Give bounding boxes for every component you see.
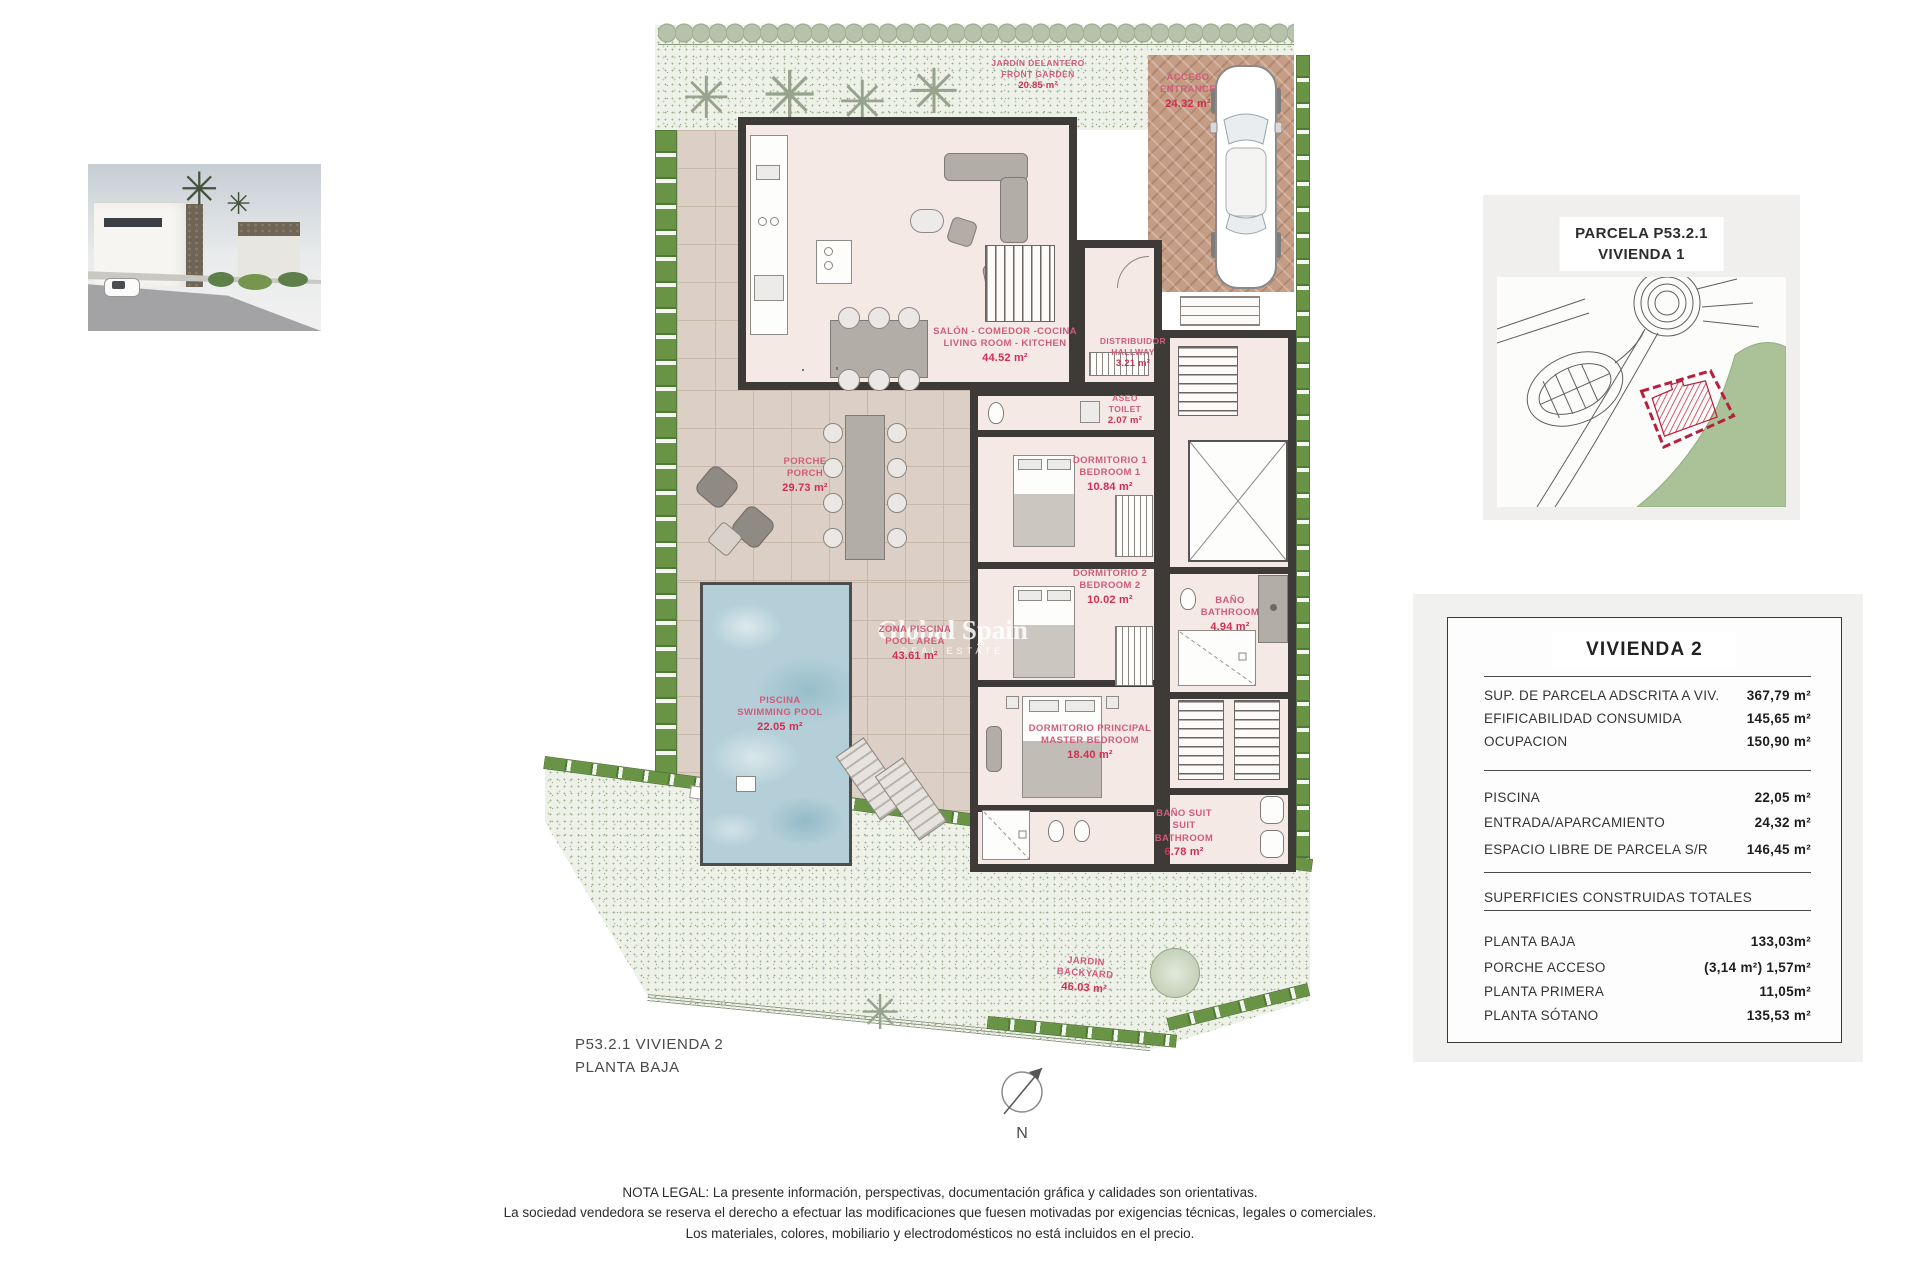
wardrobe: [1115, 495, 1153, 557]
room-area: 24.32 m²: [1152, 97, 1224, 111]
label-toilet: ASEO TOILET 2.07 m²: [1103, 393, 1147, 427]
interior-wall: [1170, 692, 1288, 699]
divider: [1484, 872, 1811, 873]
room-area: 43.61 m²: [878, 649, 952, 663]
location-title-line2: VIVIENDA 1: [1575, 244, 1708, 265]
divider: [1484, 770, 1811, 771]
spacer: [836, 368, 838, 370]
entrance-steps: [1180, 296, 1260, 326]
row-label: PLANTA BAJA: [1484, 934, 1576, 949]
row-label: EFIFICABILIDAD CONSUMIDA: [1484, 711, 1682, 726]
row-value: 145,65 m²: [1747, 711, 1811, 726]
armchair: [946, 216, 979, 249]
brochure-page: ✳ ✳ ✳ ✳ ✳ ✳: [0, 0, 1920, 1280]
summary-row: ENTRADA/APARCAMIENTO 24,32 m²: [1484, 815, 1811, 830]
photo-car-window: [112, 281, 125, 289]
pillow-icon: [1065, 700, 1095, 712]
shower: [1178, 630, 1256, 686]
photo-stone-band: [238, 222, 300, 236]
room-name-es: SALÓN - COMEDOR -COCINA: [930, 326, 1080, 338]
pillow-icon: [1029, 700, 1059, 712]
room-area: 6.78 m²: [1143, 845, 1225, 859]
room-name-en: BEDROOM 1: [1068, 467, 1152, 479]
row-value: 150,90 m²: [1747, 734, 1811, 749]
hob-burner-icon: [824, 261, 833, 270]
room-name-es: DISTRIBUIDOR: [1098, 336, 1168, 347]
room-name-es: JARDIN DELANTERO: [983, 58, 1093, 69]
room-area: 4.94 m²: [1193, 620, 1267, 634]
room-name-en: TOILET: [1103, 404, 1147, 415]
room-name-en: HALLWAY: [1098, 347, 1168, 358]
outdoor-chair-icon: [887, 458, 907, 478]
summary-row: PISCINA 22,05 m²: [1484, 790, 1811, 805]
row-value: 11,05m²: [1759, 984, 1811, 999]
row-label: SUP. DE PARCELA ADSCRITA A VIV.: [1484, 688, 1719, 703]
project-photo: ✳ ✳: [88, 164, 321, 331]
label-pool-area: ZONA PISCINA POOL AREA 43.61 m²: [878, 624, 952, 663]
legal-line3: Los materiales, colores, mobiliario y el…: [440, 1224, 1440, 1244]
outdoor-chair-icon: [887, 528, 907, 548]
dining-chair-icon: [898, 307, 920, 329]
coffee-table: [910, 209, 944, 233]
elevator-shaft: [1188, 440, 1288, 562]
room-name-es: ZONA PISCINA: [878, 624, 952, 636]
sheet-title-line1: P53.2.1 VIVIENDA 2: [575, 1033, 723, 1056]
interior-wall: [978, 430, 1154, 437]
room-name-es: PISCINA: [735, 695, 825, 707]
hob-burner-icon: [758, 217, 767, 226]
outdoor-chair-icon: [823, 528, 843, 548]
row-value: 367,79 m²: [1747, 688, 1811, 703]
room-name-en: LIVING ROOM - KITCHEN: [930, 338, 1080, 350]
hob-burner-icon: [770, 217, 779, 226]
pillow-icon: [1018, 459, 1042, 470]
room-name-en: PORCH: [778, 468, 832, 480]
hob-burner-icon: [824, 247, 833, 256]
suite-sink-icon: [1260, 796, 1284, 824]
row-label: PLANTA PRIMERA: [1484, 984, 1604, 999]
hedge-scallops: [658, 22, 1294, 45]
divider: [1484, 676, 1811, 677]
dining-chair-icon: [868, 307, 890, 329]
basement-stairs-run: [1234, 700, 1280, 780]
sheet-title-line2: PLANTA BAJA: [575, 1056, 723, 1079]
summary-row: PLANTA SÓTANO 135,53 m²: [1484, 1008, 1811, 1023]
photo-bush: [238, 274, 272, 290]
shower: [982, 810, 1030, 860]
nightstand: [1106, 696, 1119, 709]
summary-panel: VIVIENDA 2 SUP. DE PARCELA ADSCRITA A VI…: [1413, 594, 1863, 1062]
legal-note: NOTA LEGAL: La presente información, per…: [440, 1183, 1440, 1244]
tree-icon: [1150, 948, 1200, 998]
row-label: PORCHE ACCESO: [1484, 960, 1606, 975]
label-suite-bathroom: BAÑO SUIT SUIT BATHROOM 6.78 m²: [1143, 808, 1225, 859]
label-living-room: SALÓN - COMEDOR -COCINA LIVING ROOM - KI…: [930, 326, 1080, 365]
room-name-en: BATHROOM: [1193, 607, 1267, 619]
summary-row: PORCHE ACCESO (3,14 m²) 1,57m²: [1484, 960, 1811, 975]
palm-tree-icon: ✳: [860, 990, 900, 1038]
palm-tree-icon: ✳: [682, 70, 731, 128]
room-name-en: POOL AREA: [878, 636, 952, 648]
row-label: PLANTA SÓTANO: [1484, 1008, 1598, 1023]
chaise: [986, 726, 1002, 772]
bed-double: [1013, 455, 1075, 547]
summary-row: OCUPACION 150,90 m²: [1484, 734, 1811, 749]
room-name-es: DORMITORIO PRINCIPAL: [1025, 723, 1155, 735]
photo-stone-wall: [186, 204, 203, 287]
room-area: 10.84 m²: [1068, 480, 1152, 494]
entry-stairs: [985, 245, 1055, 322]
kitchen-island: [816, 240, 852, 284]
room-area: 29.73 m²: [778, 481, 832, 495]
outdoor-table: [845, 415, 885, 560]
summary-panel-box: VIVIENDA 2 SUP. DE PARCELA ADSCRITA A VI…: [1447, 617, 1842, 1043]
room-name-es: BAÑO SUIT: [1143, 808, 1225, 820]
row-label: ENTRADA/APARCAMIENTO: [1484, 815, 1665, 830]
sheet-title: P53.2.1 VIVIENDA 2 PLANTA BAJA: [575, 1033, 723, 1080]
row-value: 135,53 m²: [1747, 1008, 1811, 1023]
label-bedroom-1: DORMITORIO 1 BEDROOM 1 10.84 m²: [1068, 455, 1152, 494]
summary-title: VIVIENDA 2: [1552, 632, 1737, 668]
row-value: (3,14 m²) 1,57m²: [1704, 960, 1811, 975]
photo-bush: [208, 272, 234, 287]
palm-tree-icon: ✳: [908, 62, 960, 124]
label-swimming-pool: PISCINA SWIMMING POOL 22.05 m²: [735, 695, 825, 734]
room-name-es: DORMITORIO 2: [1068, 568, 1152, 580]
label-master-bedroom: DORMITORIO PRINCIPAL MASTER BEDROOM 18.4…: [1025, 723, 1155, 762]
legal-line2: La sociedad vendedora se reserva el dere…: [440, 1203, 1440, 1223]
room-area: 22.05 m²: [735, 720, 825, 734]
dining-chair-icon: [838, 307, 860, 329]
label-bedroom-2: DORMITORIO 2 BEDROOM 2 10.02 m²: [1068, 568, 1152, 607]
summary-row: PLANTA PRIMERA 11,05m²: [1484, 984, 1811, 999]
location-panel: PARCELA P53.2.1 VIVIENDA 1: [1483, 195, 1800, 520]
suite-sink-icon: [1260, 830, 1284, 858]
outdoor-chair-icon: [887, 493, 907, 513]
label-front-garden: JARDIN DELANTERO FRONT GARDEN 20.85 m²: [983, 58, 1093, 92]
room-area: 2.07 m²: [1103, 415, 1147, 427]
room-name-en: BEDROOM 2: [1068, 580, 1152, 592]
pillow-icon: [1018, 590, 1042, 601]
row-value: 146,45 m²: [1747, 842, 1811, 857]
sink-icon: [1080, 401, 1100, 423]
outdoor-chair-icon: [887, 423, 907, 443]
room-name-es: DORMITORIO 1: [1068, 455, 1152, 467]
toilet-icon: [1048, 820, 1064, 842]
compass-icon: [994, 1060, 1050, 1120]
location-panel-title: PARCELA P53.2.1 VIVIENDA 1: [1559, 217, 1724, 271]
dining-chair-icon: [898, 369, 920, 391]
room-area: 3.21 m²: [1098, 358, 1168, 370]
north-label: N: [994, 1125, 1050, 1143]
label-backyard: JARDIN BACKYARD 46.03 m²: [1029, 952, 1141, 999]
row-label: ESPACIO LIBRE DE PARCELA S/R: [1484, 842, 1708, 857]
site-map: [1497, 277, 1786, 507]
room-area: 10.02 m²: [1068, 593, 1152, 607]
row-label: OCUPACION: [1484, 734, 1567, 749]
row-value: 24,32 m²: [1755, 815, 1811, 830]
spacer: [802, 369, 804, 371]
label-hallway: DISTRIBUIDOR HALLWAY 3.21 m²: [1098, 336, 1168, 370]
door-swing-icon: [1117, 256, 1149, 288]
room-area: 44.52 m²: [930, 351, 1080, 365]
room-name-es: BAÑO: [1193, 595, 1267, 607]
label-porch: PORCHE PORCH 29.73 m²: [778, 456, 832, 495]
room-name-en: SWIMMING POOL: [735, 707, 825, 719]
oven: [754, 275, 784, 301]
nightstand: [1006, 696, 1019, 709]
dining-chair-icon: [838, 369, 860, 391]
room-name-es: ASEO: [1103, 393, 1147, 404]
blanket: [1014, 494, 1074, 546]
room-name-en: MASTER BEDROOM: [1025, 735, 1155, 747]
room-area: 20.85 m²: [983, 80, 1093, 92]
north-compass: N: [994, 1060, 1050, 1146]
room-name-es: ACCESO: [1152, 72, 1224, 84]
row-value: 133,03m²: [1751, 934, 1811, 949]
room-name-en: FRONT GARDEN: [983, 69, 1093, 80]
built-areas-header: SUPERFICIES CONSTRUIDAS TOTALES: [1484, 890, 1811, 911]
room-name-es: PORCHE: [778, 456, 832, 468]
summary-row: EFIFICABILIDAD CONSUMIDA 145,65 m²: [1484, 711, 1811, 726]
room-name-en: SUIT BATHROOM: [1143, 820, 1225, 845]
row-label: PISCINA: [1484, 790, 1540, 805]
legal-line1: NOTA LEGAL: La presente información, per…: [440, 1183, 1440, 1203]
toilet-icon: [988, 402, 1004, 424]
floor-plan: ✳ ✳ ✳ ✳: [540, 18, 1314, 1148]
upper-stairs: [1178, 346, 1238, 416]
label-entrance: ACCESO ENTRANCE 24.32 m²: [1152, 72, 1224, 111]
faucet-icon: [1270, 604, 1277, 611]
row-value: 22,05 m²: [1755, 790, 1811, 805]
summary-row: SUP. DE PARCELA ADSCRITA A VIV. 367,79 m…: [1484, 688, 1811, 703]
location-title-line1: PARCELA P53.2.1: [1575, 223, 1708, 244]
basement-stairs-run: [1178, 700, 1224, 780]
interior-wall: [1170, 567, 1288, 574]
room-area: 18.40 m²: [1025, 748, 1155, 762]
terrace-strip: [677, 130, 740, 408]
boundary-hedge-left: [655, 130, 677, 788]
sofa: [1000, 177, 1028, 243]
interior-wall: [1170, 788, 1288, 795]
kitchen-sink: [756, 165, 780, 180]
room-name-en: ENTRANCE: [1152, 84, 1224, 96]
photo-bush: [278, 272, 308, 287]
wardrobe: [1115, 626, 1153, 686]
photo-window-band: [104, 218, 162, 227]
label-bathroom: BAÑO BATHROOM 4.94 m²: [1193, 595, 1267, 634]
palm-tree-icon: ✳: [226, 190, 251, 220]
dining-chair-icon: [868, 369, 890, 391]
garden-gate: [736, 776, 756, 792]
summary-row: ESPACIO LIBRE DE PARCELA S/R 146,45 m²: [1484, 842, 1811, 857]
outdoor-chair-icon: [823, 493, 843, 513]
outdoor-chair-icon: [823, 423, 843, 443]
palm-tree-icon: ✳: [180, 166, 219, 212]
bidet-icon: [1074, 820, 1090, 842]
summary-row: PLANTA BAJA 133,03m²: [1484, 934, 1811, 949]
